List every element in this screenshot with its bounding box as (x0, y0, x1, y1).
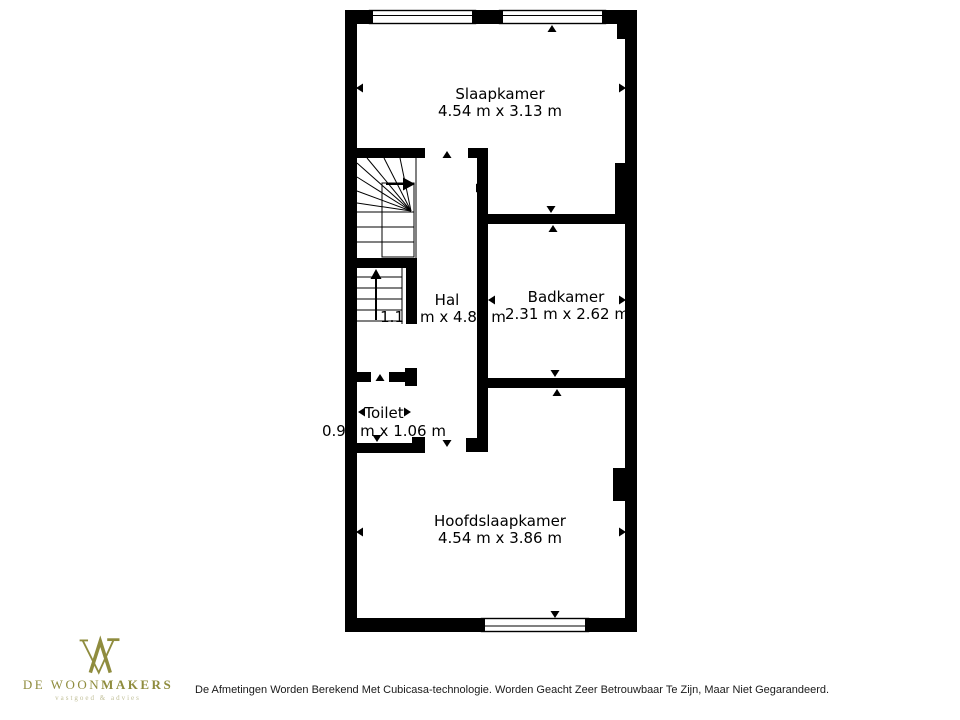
brand-tagline: vastgoed & advies (55, 694, 141, 702)
wall (488, 214, 625, 224)
wall (617, 24, 625, 39)
wall (345, 148, 425, 158)
window-icon (500, 11, 606, 24)
window-icon (482, 619, 589, 632)
woonmakers-w-icon (75, 634, 121, 676)
brand-name-bold: MAKERS (101, 677, 173, 692)
wall (412, 437, 425, 453)
room-dims-hoofdslaapkamer: 4.54 m x 3.86 m (438, 529, 562, 547)
wall (613, 468, 625, 501)
wall (345, 10, 357, 632)
wall (488, 378, 625, 388)
room-label-toilet: Toilet (363, 404, 403, 422)
room-dims-badkamer: 2.31 m x 2.62 m (505, 305, 629, 323)
brand-name-regular: DE WOON (23, 677, 101, 692)
wall (345, 372, 371, 382)
window-icon (370, 11, 476, 24)
wall (389, 372, 405, 382)
room-label-badkamer: Badkamer (528, 288, 605, 306)
room-dims-slaapkamer: 4.54 m x 3.13 m (438, 102, 562, 120)
room-label-slaapkamer: Slaapkamer (455, 85, 545, 103)
room-dims-toilet: 0.99 m x 1.06 m (322, 422, 446, 440)
wall (625, 10, 637, 632)
floorplan: Slaapkamer 4.54 m x 3.13 m Badkamer 2.31… (0, 0, 960, 720)
wall (466, 438, 488, 452)
room-label-hal: Hal (435, 291, 460, 309)
brand-logo: DE WOONMAKERS vastgoed & advies (22, 634, 174, 702)
wall (406, 258, 417, 324)
brand-name: DE WOONMAKERS (23, 677, 173, 693)
room-dims-hal-left: 1.1 (380, 308, 404, 326)
room-label-hoofdslaapkamer: Hoofdslaapkamer (434, 512, 567, 530)
room-dims-hal-right: m x 4.80 m (420, 308, 506, 326)
wall (405, 368, 417, 386)
wall (477, 148, 488, 440)
disclaimer-text: De Afmetingen Worden Berekend Met Cubica… (195, 684, 829, 696)
